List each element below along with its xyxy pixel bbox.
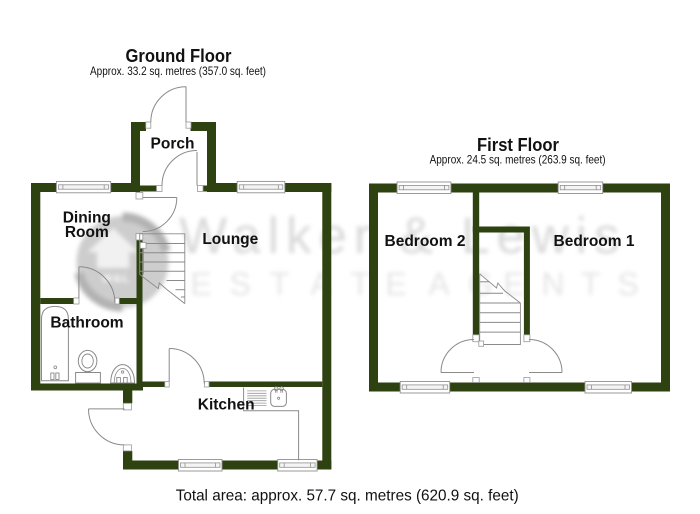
svg-text:S: S [617,266,638,302]
svg-text:Bathroom: Bathroom [50,314,123,331]
svg-text:E: E [503,266,524,302]
svg-text:Approx. 24.5 sq. metres (263.9: Approx. 24.5 sq. metres (263.9 sq. feet) [430,152,606,166]
svg-text:E: E [190,266,211,302]
svg-text:T: T [350,266,370,302]
svg-text:N: N [541,266,564,302]
svg-text:Approx. 33.2 sq. metres (357.0: Approx. 33.2 sq. metres (357.0 sq. feet) [90,64,266,78]
svg-text:Kitchen: Kitchen [198,396,255,413]
svg-text:T: T [581,266,601,302]
svg-text:Lounge: Lounge [202,231,258,248]
svg-text:Room: Room [65,224,109,241]
svg-text:T: T [270,266,290,302]
svg-text:S: S [229,266,250,302]
svg-text:Total area: approx. 57.7 sq. m: Total area: approx. 57.7 sq. metres (620… [176,488,519,505]
svg-text:G: G [468,266,493,302]
svg-text:A: A [428,266,450,302]
svg-text:E: E [385,266,406,302]
svg-text:Bedroom 2: Bedroom 2 [385,233,466,250]
svg-text:Bedroom 1: Bedroom 1 [554,233,635,250]
svg-text:Porch: Porch [151,135,195,152]
